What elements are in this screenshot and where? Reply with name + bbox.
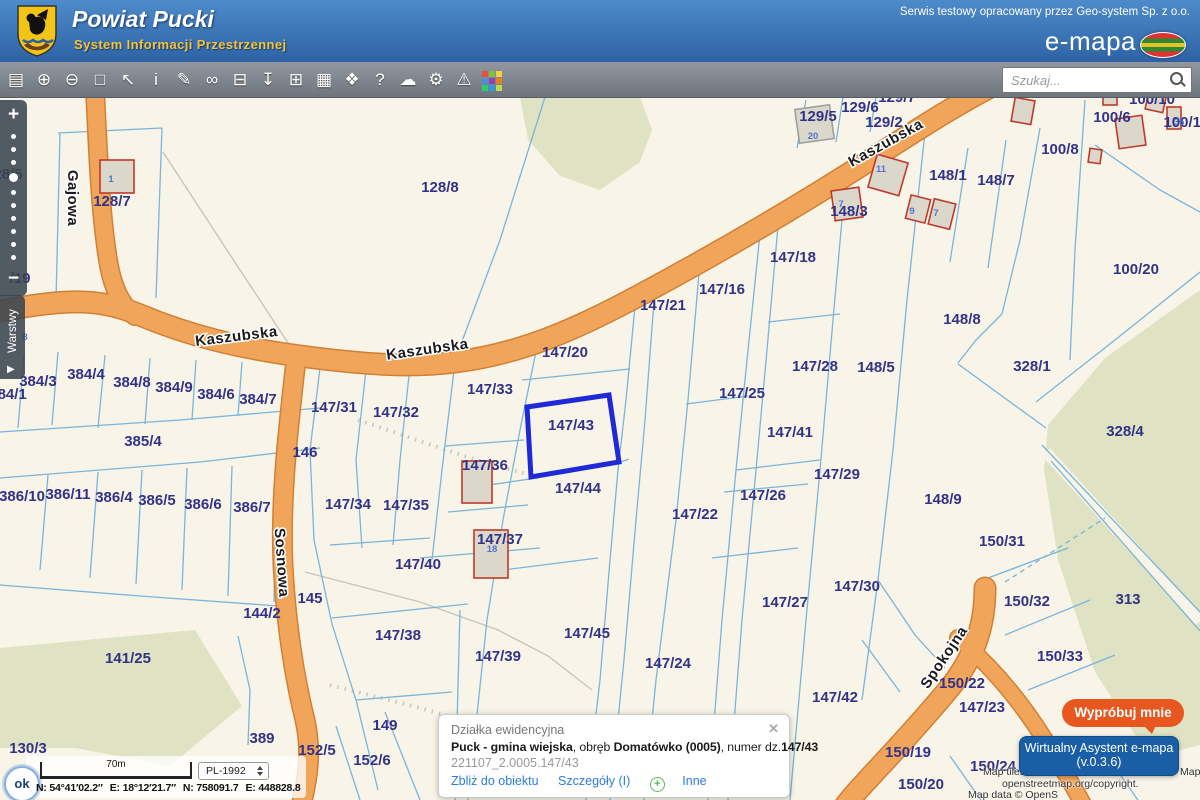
polygon-note-icon[interactable]: ❖ (338, 62, 366, 97)
parcel-label: 128/7 (93, 193, 131, 210)
coordinate-value: E: 18°12′21.7″ (110, 782, 176, 794)
parcel-label: 147/37 (477, 531, 523, 548)
scale-label: 70m (42, 759, 190, 770)
house-number: 7 (933, 208, 938, 219)
info-icon[interactable]: i (142, 62, 170, 97)
pointer-icon[interactable]: ↖ (114, 62, 142, 97)
parcel-label: 385/4 (124, 433, 162, 450)
parcel-label: 148/9 (924, 491, 962, 508)
parcel-label: 145 (297, 590, 322, 607)
parcel-label: 384/7 (239, 391, 277, 408)
parcel-label: 129/5 (799, 108, 837, 125)
parcel-label: 386/5 (138, 492, 176, 509)
emapa-logo-text: e-mapa (1045, 26, 1136, 57)
house-number: 11 (876, 164, 887, 175)
zoom-to-object-link[interactable]: Zbliż do obiektu (451, 774, 539, 788)
building (100, 160, 134, 193)
parcel-label: 147/25 (719, 385, 765, 402)
search-input[interactable] (1009, 69, 1163, 91)
parcel-label: 141/25 (105, 650, 151, 667)
app-title: Powiat Pucki (72, 6, 214, 33)
search-box (1002, 67, 1192, 93)
zoom-level-slider[interactable] (0, 134, 27, 260)
parcel-label: 328/1 (1013, 358, 1051, 375)
zoom-level-dot[interactable] (11, 229, 16, 234)
search-icon[interactable] (1170, 72, 1183, 85)
map-canvas[interactable]: 128/7128/8129/5129/6129/2129/7148/1148/7… (0, 0, 1200, 800)
parcel-label: 147/27 (762, 594, 808, 611)
parcel-label: 384/4 (67, 366, 105, 383)
parcel-label: 147/26 (740, 487, 786, 504)
link-icon[interactable]: ∞ (198, 62, 226, 97)
parcel-label: 384/9 (155, 379, 193, 396)
parcel-label: 313 (1115, 591, 1140, 608)
popup-district: Domatówko (0005) (614, 740, 721, 754)
crs-value: PL-1992 (206, 765, 246, 777)
measure-icon[interactable]: ✎ (170, 62, 198, 97)
parcel-label: 386/10 (0, 488, 45, 505)
settings-icon[interactable]: ⚙ (422, 62, 450, 97)
popup-type-label: Działka ewidencyjna (451, 723, 777, 737)
parcel-label: 150/33 (1037, 648, 1083, 665)
parcel-label: 100/8 (1041, 141, 1079, 158)
coordinate-value: E: 448828.8 (246, 782, 301, 794)
parcel-label: 384/8 (113, 374, 151, 391)
assistant-try-bubble[interactable]: Wypróbuj mnie (1062, 699, 1184, 727)
parcel-label: 148/5 (857, 359, 895, 376)
house-number: 35 (1174, 117, 1185, 128)
print-icon[interactable]: ⊟ (226, 62, 254, 97)
feature-popup: Działka ewidencyjna ✕ Puck - gmina wiejs… (438, 714, 790, 798)
toolbar: ▤⊕⊖□↖i✎∞⊟↧⊞▦❖?☁⚙⚠ (0, 62, 1200, 98)
house-number: 1 (108, 174, 114, 185)
zoom-control: + − (0, 100, 27, 296)
parcel-label: 146 (292, 444, 317, 461)
zoom-level-dot[interactable] (11, 190, 16, 195)
other-link[interactable]: Inne (682, 774, 706, 788)
expand-arrow-icon: ▶ (7, 364, 15, 375)
parcel-label: 386/4 (95, 489, 133, 506)
scale-bar: 70m (40, 762, 192, 779)
parcel-label: 147/39 (475, 648, 521, 665)
house-number: 20 (808, 131, 819, 142)
house-number: 7 (838, 199, 843, 210)
parcel-label: 147/20 (542, 344, 588, 361)
report-problem-icon[interactable]: ⚠ (450, 62, 478, 97)
emapa-globe-icon (1140, 32, 1186, 58)
popup-sep1: , obręb (573, 740, 614, 754)
coordinate-value: N: 54°41′02.2″ (36, 782, 103, 794)
parcel-label: 100/20 (1113, 261, 1159, 278)
parcel-label: 147/45 (564, 625, 610, 642)
street-name-label: Gajowa (64, 170, 81, 227)
popup-municipality: Puck - gmina wiejska (451, 740, 573, 754)
select-area-icon[interactable]: □ (86, 62, 114, 97)
parcel-label: 147/35 (383, 497, 429, 514)
parcel-label: 147/32 (373, 404, 419, 421)
popup-object-id: 221107_2.0005.147/43 (451, 756, 777, 770)
parcel-label: 386/11 (45, 486, 90, 503)
parcel-label: 389 (249, 730, 274, 747)
popup-sep2: , numer dz. (721, 740, 781, 754)
parcel-label: 328/4 (1106, 423, 1144, 440)
zoom-out-button[interactable]: − (0, 268, 27, 290)
building (1088, 148, 1102, 164)
parcel-label: 147/30 (834, 578, 880, 595)
assistant-button-line2: (v.0.3.6) (1020, 755, 1178, 769)
layers-tab-label: Warstwy (7, 296, 19, 366)
zoom-level-dot[interactable] (11, 216, 16, 221)
parcel-label: 147/24 (645, 655, 692, 672)
app-window: 128/7128/8129/5129/6129/2129/7148/1148/7… (0, 0, 1200, 800)
virtual-assistant-button[interactable]: Wirtualny Asystent e-mapa (v.0.3.6) (1019, 736, 1179, 776)
zoom-level-dot[interactable] (11, 147, 16, 152)
attribution-map-data: Map data © OpenS (968, 789, 1058, 800)
parcel-label: 147/42 (812, 689, 858, 706)
zoom-level-dot[interactable] (9, 173, 18, 182)
help-icon[interactable]: ? (366, 62, 394, 97)
zoom-level-dot[interactable] (11, 160, 16, 165)
parcel-label: 384/6 (197, 386, 235, 403)
parcel-label: 147/41 (767, 424, 813, 441)
parcel-label: 150/32 (1004, 593, 1050, 610)
service-note: Serwis testowy opracowany przez Geo-syst… (900, 6, 1190, 18)
parcel-label: 150/20 (898, 776, 944, 793)
parcel-label: 147/34 (325, 496, 372, 513)
parcel-label: 147/40 (395, 556, 441, 573)
parcel-label: 147/21 (640, 297, 686, 314)
crs-up-arrow-icon[interactable] (257, 766, 263, 770)
zoom-in-button[interactable]: + (0, 104, 27, 126)
coordinates-readout: N: 54°41′02.2″E: 18°12′21.7″N: 758091.7E… (36, 782, 308, 794)
parcel-label: 148/7 (977, 172, 1015, 189)
building (1011, 97, 1035, 124)
plus-circle-icon[interactable]: + (650, 777, 665, 792)
popup-parcel-number: 147/43 (781, 740, 818, 754)
legend-icon[interactable] (478, 62, 506, 97)
house-number: 18 (487, 544, 498, 555)
parcel-label: 147/28 (792, 358, 838, 375)
app-subtitle: System Informacji Przestrzennej (74, 37, 287, 52)
zoom-out-icon[interactable]: ⊖ (58, 62, 86, 97)
parcel-label: 147/18 (770, 249, 816, 266)
popup-title: Puck - gmina wiejska, obręb Domatówko (0… (451, 740, 777, 754)
street-view-icon[interactable]: ↧ (254, 62, 282, 97)
parcel-label: 152/6 (353, 752, 391, 769)
parcel-label: 386/7 (233, 499, 271, 516)
parcel-label: 386/6 (184, 496, 222, 513)
layout-panels-icon[interactable]: ▦ (310, 62, 338, 97)
parcel-label: 147/23 (959, 699, 1005, 716)
parcel-label: 147/31 (311, 399, 357, 416)
coordinate-value: N: 758091.7 (183, 782, 239, 794)
parcel-label: 147/29 (814, 466, 860, 483)
parcel-label: 150/22 (939, 675, 985, 692)
parcel-label: 147/43 (548, 417, 594, 434)
parcel-label: 128/8 (421, 179, 459, 196)
zoom-level-dot[interactable] (11, 255, 16, 260)
zoom-in-icon[interactable]: ⊕ (30, 62, 58, 97)
house-number: 9 (909, 206, 914, 217)
parcel-label: 147/33 (467, 381, 513, 398)
parcel-label: 147/22 (672, 506, 718, 523)
close-icon[interactable]: ✕ (768, 721, 779, 737)
parcel-label: 130/3 (9, 740, 47, 757)
parcel-label: 150/19 (885, 744, 931, 761)
parcel-label: 148/8 (943, 311, 981, 328)
popup-links: Zbliż do obiektu Szczegóły (I) + Inne (451, 774, 777, 792)
ok-button[interactable]: ok (4, 766, 40, 800)
parcel-label: 147/36 (462, 457, 508, 474)
layers-panel-tab[interactable]: Warstwy ▶ (0, 295, 25, 379)
parcel-label: 147/16 (699, 281, 745, 298)
parcel-label: 144/2 (243, 605, 281, 622)
assistant-button-line1: Wirtualny Asystent e-mapa (1020, 741, 1178, 755)
details-link[interactable]: Szczegóły (I) (558, 774, 630, 788)
zoom-level-dot[interactable] (11, 242, 16, 247)
zoom-level-dot[interactable] (11, 203, 16, 208)
parcel-label: 148/3 (830, 203, 868, 220)
parcel-label: 384/1 (0, 386, 27, 403)
compare-windows-icon[interactable]: ⊞ (282, 62, 310, 97)
zoom-level-dot[interactable] (11, 134, 16, 139)
parcel-label: 100/6 (1093, 109, 1131, 126)
parcel-label: 148/1 (929, 167, 967, 184)
toolbar-icons: ▤⊕⊖□↖i✎∞⊟↧⊞▦❖?☁⚙⚠ (2, 62, 506, 97)
coat-of-arms (16, 4, 58, 58)
cloud-upload-icon[interactable]: ☁ (394, 62, 422, 97)
layers-icon[interactable]: ▤ (2, 62, 30, 97)
parcel-label: 150/31 (979, 533, 1025, 550)
parcel-label: 147/38 (375, 627, 421, 644)
crs-select[interactable]: PL-1992 (198, 762, 269, 780)
header-bar: Powiat Pucki System Informacji Przestrze… (0, 0, 1200, 63)
attribution-map: Map (1180, 766, 1200, 778)
parcel-label: 147/44 (555, 480, 602, 497)
parcel-label: 149 (372, 717, 397, 734)
crs-down-arrow-icon[interactable] (257, 772, 263, 776)
